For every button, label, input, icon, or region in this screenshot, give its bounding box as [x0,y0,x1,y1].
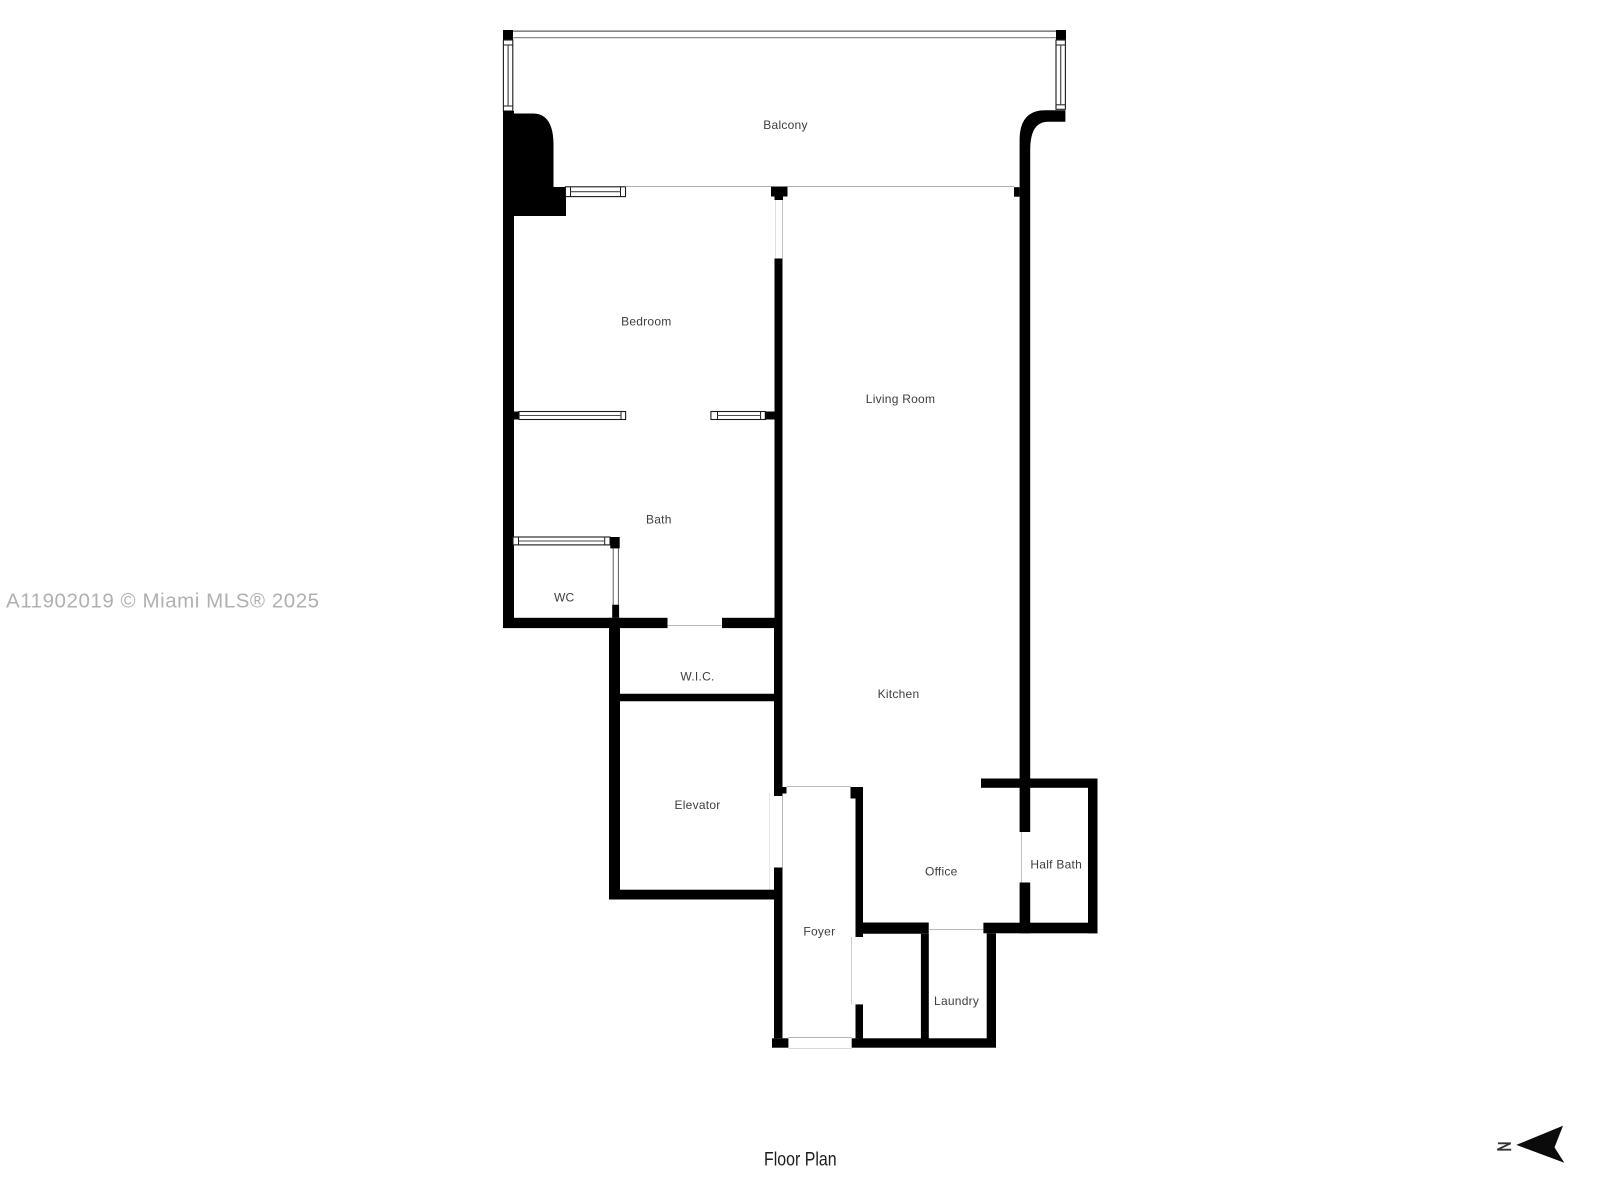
svg-text:Half Bath: Half Bath [1030,858,1082,872]
svg-text:Foyer: Foyer [803,924,835,938]
svg-text:Floor Plan: Floor Plan [764,1149,837,1171]
svg-text:Bath: Bath [646,513,672,527]
svg-text:W.I.C.: W.I.C. [680,670,714,684]
svg-text:Living Room: Living Room [866,392,935,406]
svg-text:Bedroom: Bedroom [621,315,671,329]
svg-text:Kitchen: Kitchen [878,687,920,701]
svg-text:A11902019 © Miami MLS® 2025: A11902019 © Miami MLS® 2025 [6,590,320,613]
svg-text:Balcony: Balcony [763,118,807,132]
svg-text:Elevator: Elevator [674,798,720,812]
svg-text:WC: WC [554,591,575,605]
svg-text:Office: Office [925,864,958,878]
svg-text:Laundry: Laundry [934,994,979,1008]
